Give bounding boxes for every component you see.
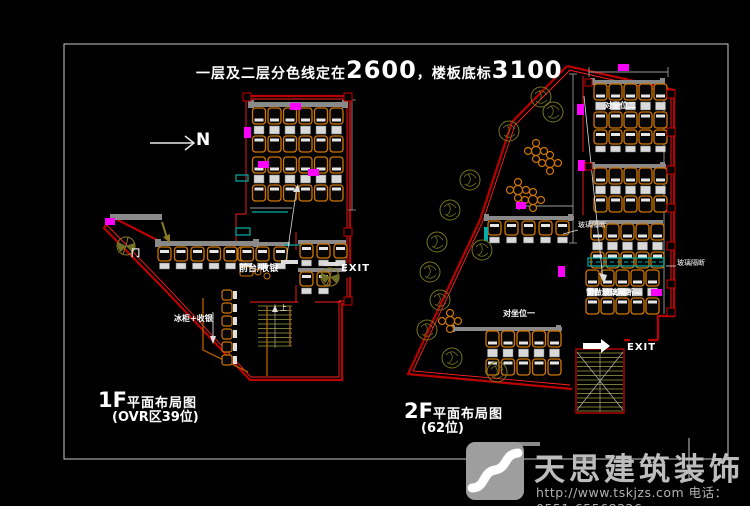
plan-1f-number: 1F xyxy=(98,390,127,411)
watermark: 天思建筑装饰 http://www.tskjzs.com 电话：0551-655… xyxy=(458,436,750,506)
title-number-3100: 3100 xyxy=(492,58,563,82)
plan-2f-number: 2F xyxy=(404,401,433,422)
partition-label-b: 玻璃隔断 xyxy=(677,260,705,267)
floor-plan-1f xyxy=(104,93,356,380)
watermark-logo xyxy=(466,442,524,500)
plan-2f-name: 平面布局图 xyxy=(433,408,503,421)
round-table xyxy=(439,140,562,333)
cashier-label: 前台/收银 xyxy=(239,265,278,274)
partition-label-a: 玻璃隔断 xyxy=(578,222,606,229)
seat-row1-label: 对坐位一 xyxy=(503,310,535,318)
watermark-contact: http://www.tskjzs.com 电话：0551-65568226 xyxy=(536,482,750,506)
seat-row2-label: 对坐位二 xyxy=(604,102,636,110)
plan-2f-caption: 2F 平面布局图 xyxy=(404,401,503,422)
title-text-mid: ，楼板底标 xyxy=(417,67,492,81)
partition-note: 需做玻璃隔断— xyxy=(586,289,642,297)
plan-1f-name: 平面布局图 xyxy=(127,397,197,410)
north-label: N xyxy=(196,132,210,149)
drawing-title: 一层及二层分色线定在2600，楼板底标3100 xyxy=(196,58,563,82)
exit-label-1f: EXIT xyxy=(341,264,370,274)
title-number-2600: 2600 xyxy=(346,58,417,82)
freezer-label: 冰柜+收银 xyxy=(174,315,213,323)
floor-plan-2f xyxy=(408,64,676,446)
exit-label-2f: EXIT xyxy=(627,343,656,353)
booth-row xyxy=(486,221,569,375)
title-text: 一层及二层分色线定在 xyxy=(196,67,346,81)
booth-row xyxy=(586,84,667,314)
stairs-up-label: 上 xyxy=(280,305,287,312)
plan-1f-count: (OVR区39位) xyxy=(112,411,199,424)
logo-s-icon xyxy=(466,442,524,500)
door-label: 门 xyxy=(131,250,140,259)
stairs-icon xyxy=(577,352,623,412)
plan-2f-count: (62位) xyxy=(421,422,464,435)
north-arrow-icon xyxy=(150,136,194,150)
exit-arrow-icon xyxy=(583,339,610,353)
plan-1f-caption: 1F 平面布局图 xyxy=(98,390,197,411)
cad-drawing-canvas: 一层及二层分色线定在2600，楼板底标3100 N 门 前台/收银 冰柜+收银 … xyxy=(0,0,750,506)
